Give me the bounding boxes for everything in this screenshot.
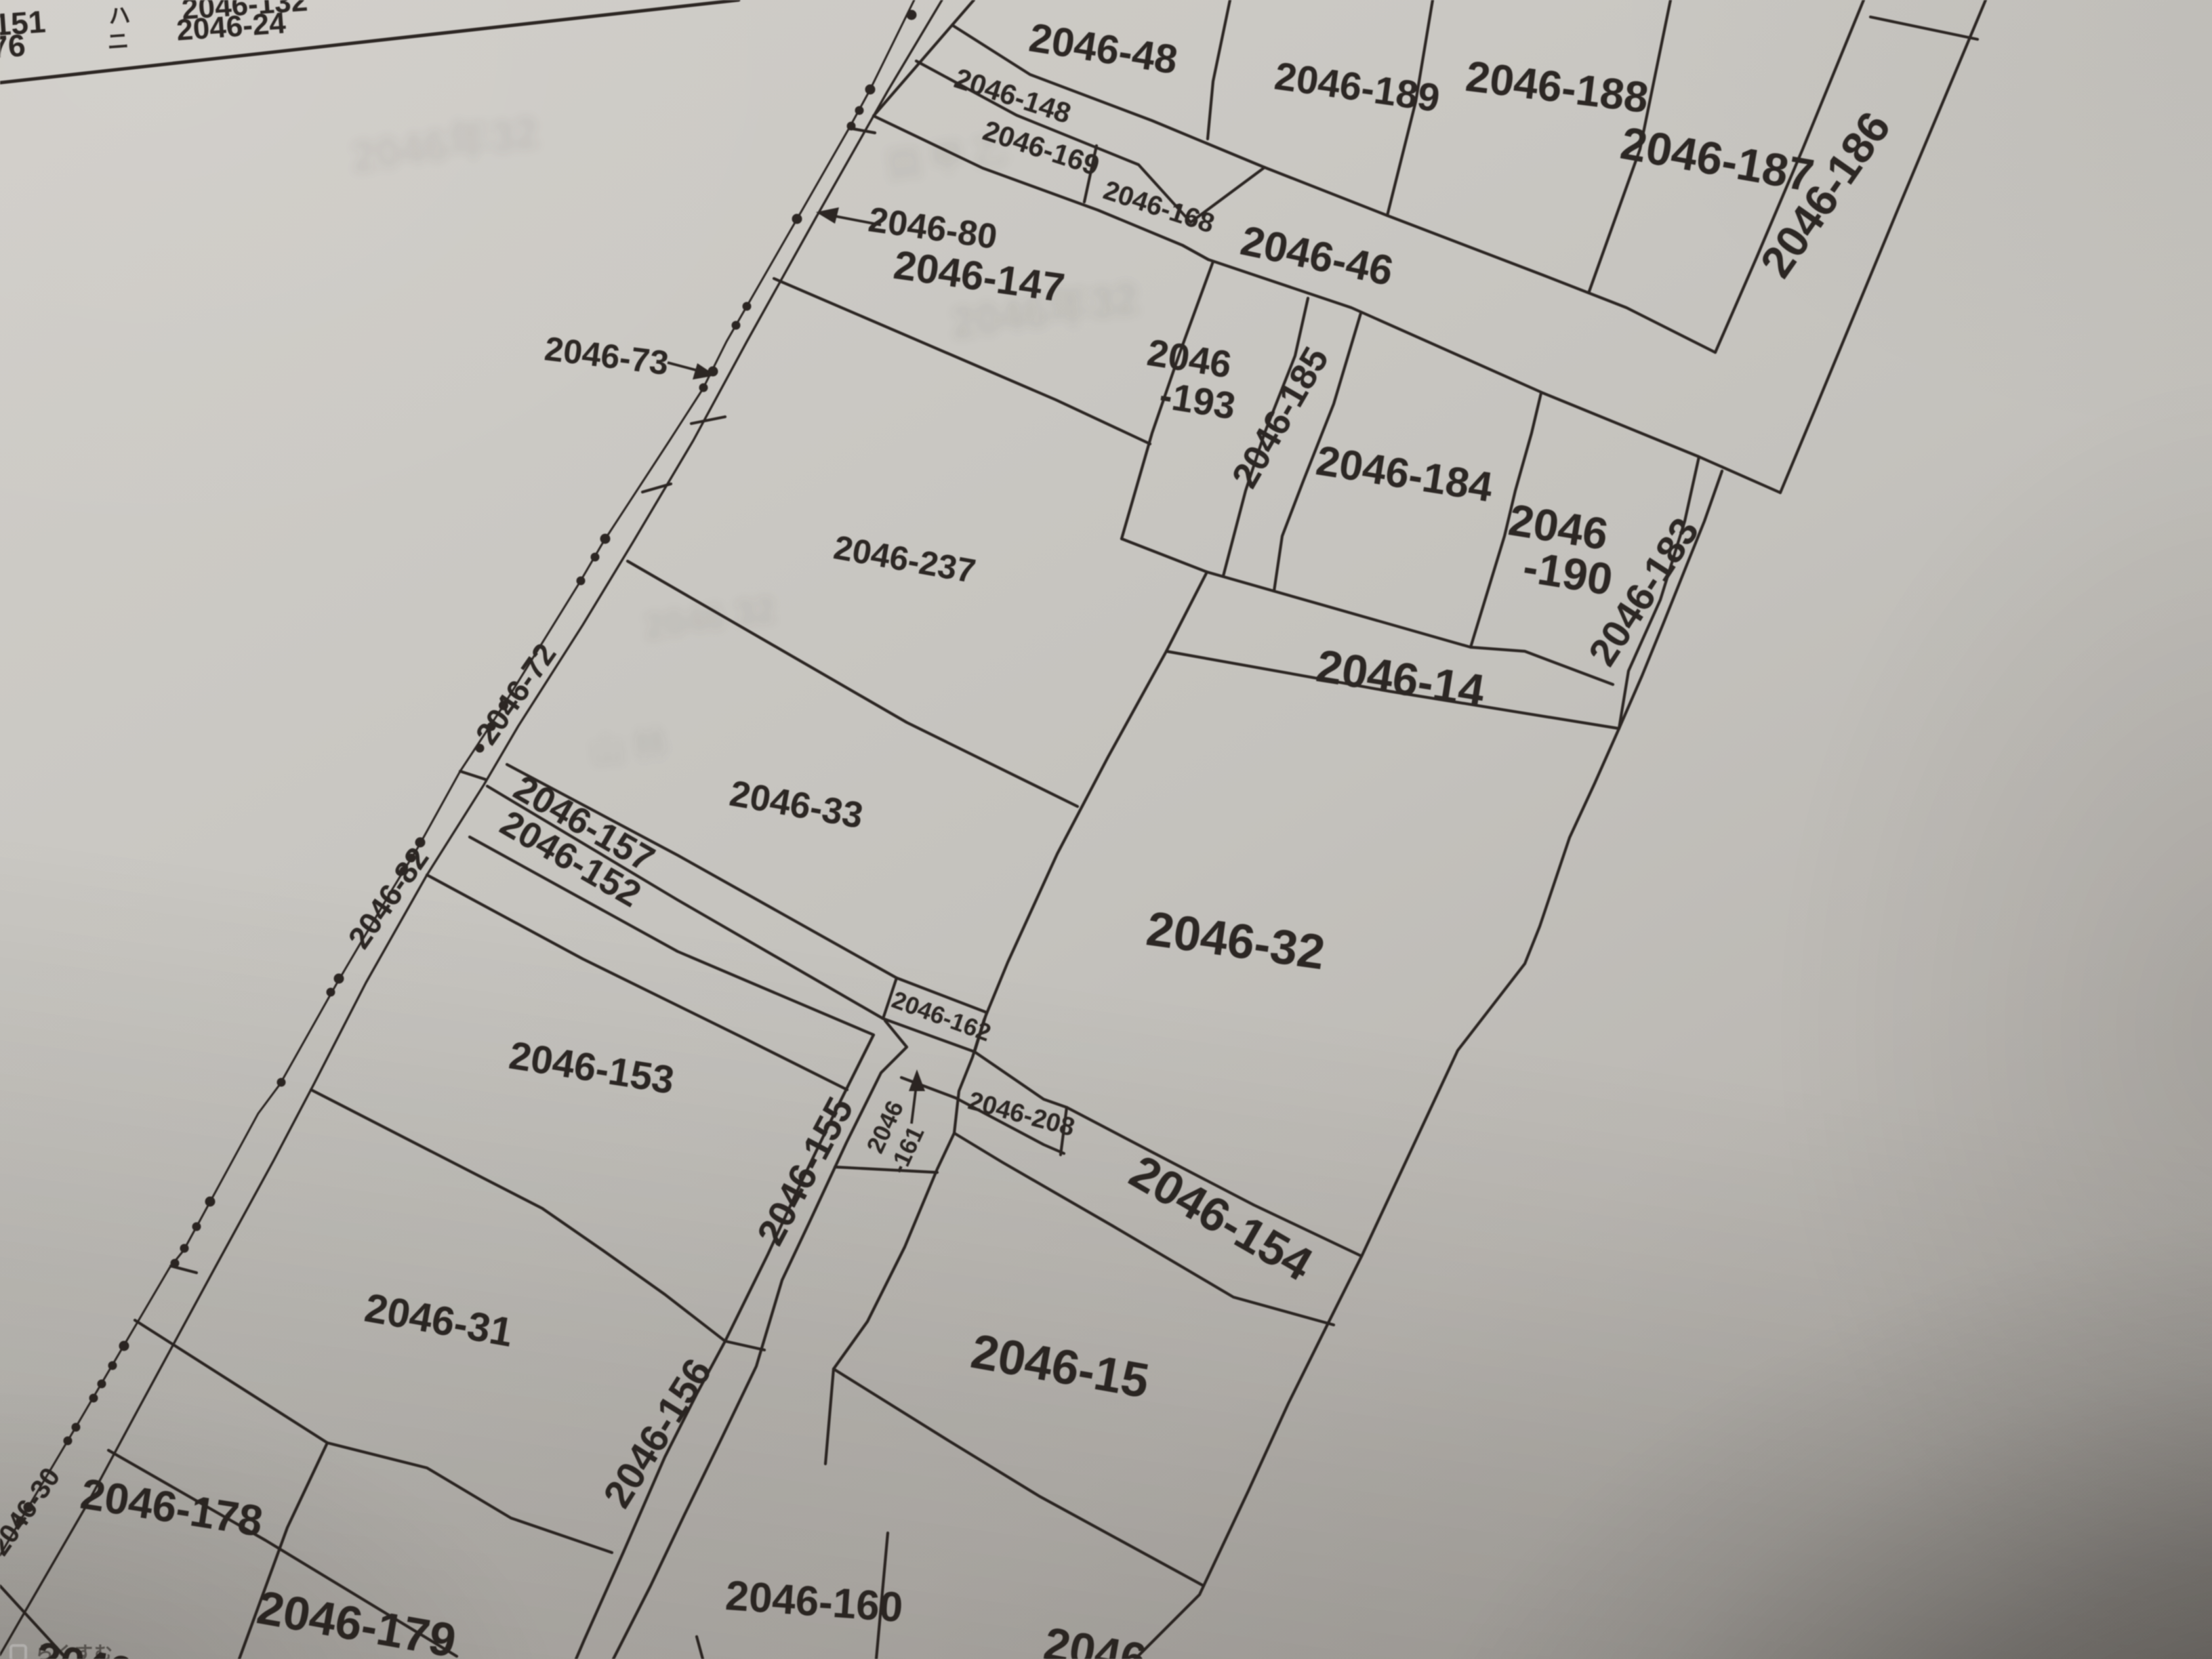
svg-text:2046-48: 2046-48 bbox=[1026, 14, 1181, 83]
svg-text:2046-178: 2046-178 bbox=[77, 1469, 266, 1546]
svg-text:2046-154: 2046-154 bbox=[1121, 1145, 1321, 1290]
svg-text:2046-32: 2046-32 bbox=[1143, 901, 1328, 980]
svg-text:2046-153: 2046-153 bbox=[506, 1033, 677, 1103]
svg-text:2046-160: 2046-160 bbox=[724, 1572, 904, 1631]
svg-text:らくすむ: らくすむ bbox=[35, 1643, 114, 1659]
svg-text:2046-179: 2046-179 bbox=[253, 1580, 460, 1659]
svg-text:ハ: ハ bbox=[108, 3, 131, 28]
svg-text:2046-155: 2046-155 bbox=[748, 1090, 861, 1252]
svg-text:2046-148: 2046-148 bbox=[951, 62, 1075, 129]
svg-text:2046: 2046 bbox=[1040, 1618, 1150, 1659]
svg-text:2046-31: 2046-31 bbox=[361, 1285, 516, 1355]
svg-text:2046-24: 2046-24 bbox=[176, 6, 287, 47]
svg-text:2046-14: 2046-14 bbox=[1313, 640, 1488, 717]
svg-text:山 林: 山 林 bbox=[588, 724, 670, 772]
svg-text:2046-188: 2046-188 bbox=[1463, 52, 1651, 122]
svg-text:2046-184: 2046-184 bbox=[1313, 437, 1496, 511]
svg-text:2046-46: 2046-46 bbox=[1237, 218, 1397, 295]
svg-text:76: 76 bbox=[0, 27, 26, 64]
svg-text:2046-82: 2046-82 bbox=[341, 841, 435, 955]
svg-text:2046-156: 2046-156 bbox=[595, 1351, 720, 1515]
svg-text:2046-73: 2046-73 bbox=[543, 329, 671, 382]
svg-text:2046-30: 2046-30 bbox=[0, 1462, 66, 1561]
svg-text:2046 32: 2046 32 bbox=[642, 589, 779, 648]
svg-text:2046年32: 2046年32 bbox=[348, 107, 541, 182]
svg-text:ニ: ニ bbox=[106, 28, 129, 54]
svg-text:2046-15: 2046-15 bbox=[967, 1324, 1153, 1409]
svg-text:2046-33: 2046-33 bbox=[726, 773, 866, 837]
svg-text:2046-168: 2046-168 bbox=[1100, 176, 1218, 239]
svg-text:2046-72: 2046-72 bbox=[468, 637, 562, 751]
svg-text:2046-237: 2046-237 bbox=[831, 528, 979, 590]
svg-text:2046-187: 2046-187 bbox=[1617, 117, 1818, 202]
svg-text:2046-189: 2046-189 bbox=[1272, 54, 1443, 120]
